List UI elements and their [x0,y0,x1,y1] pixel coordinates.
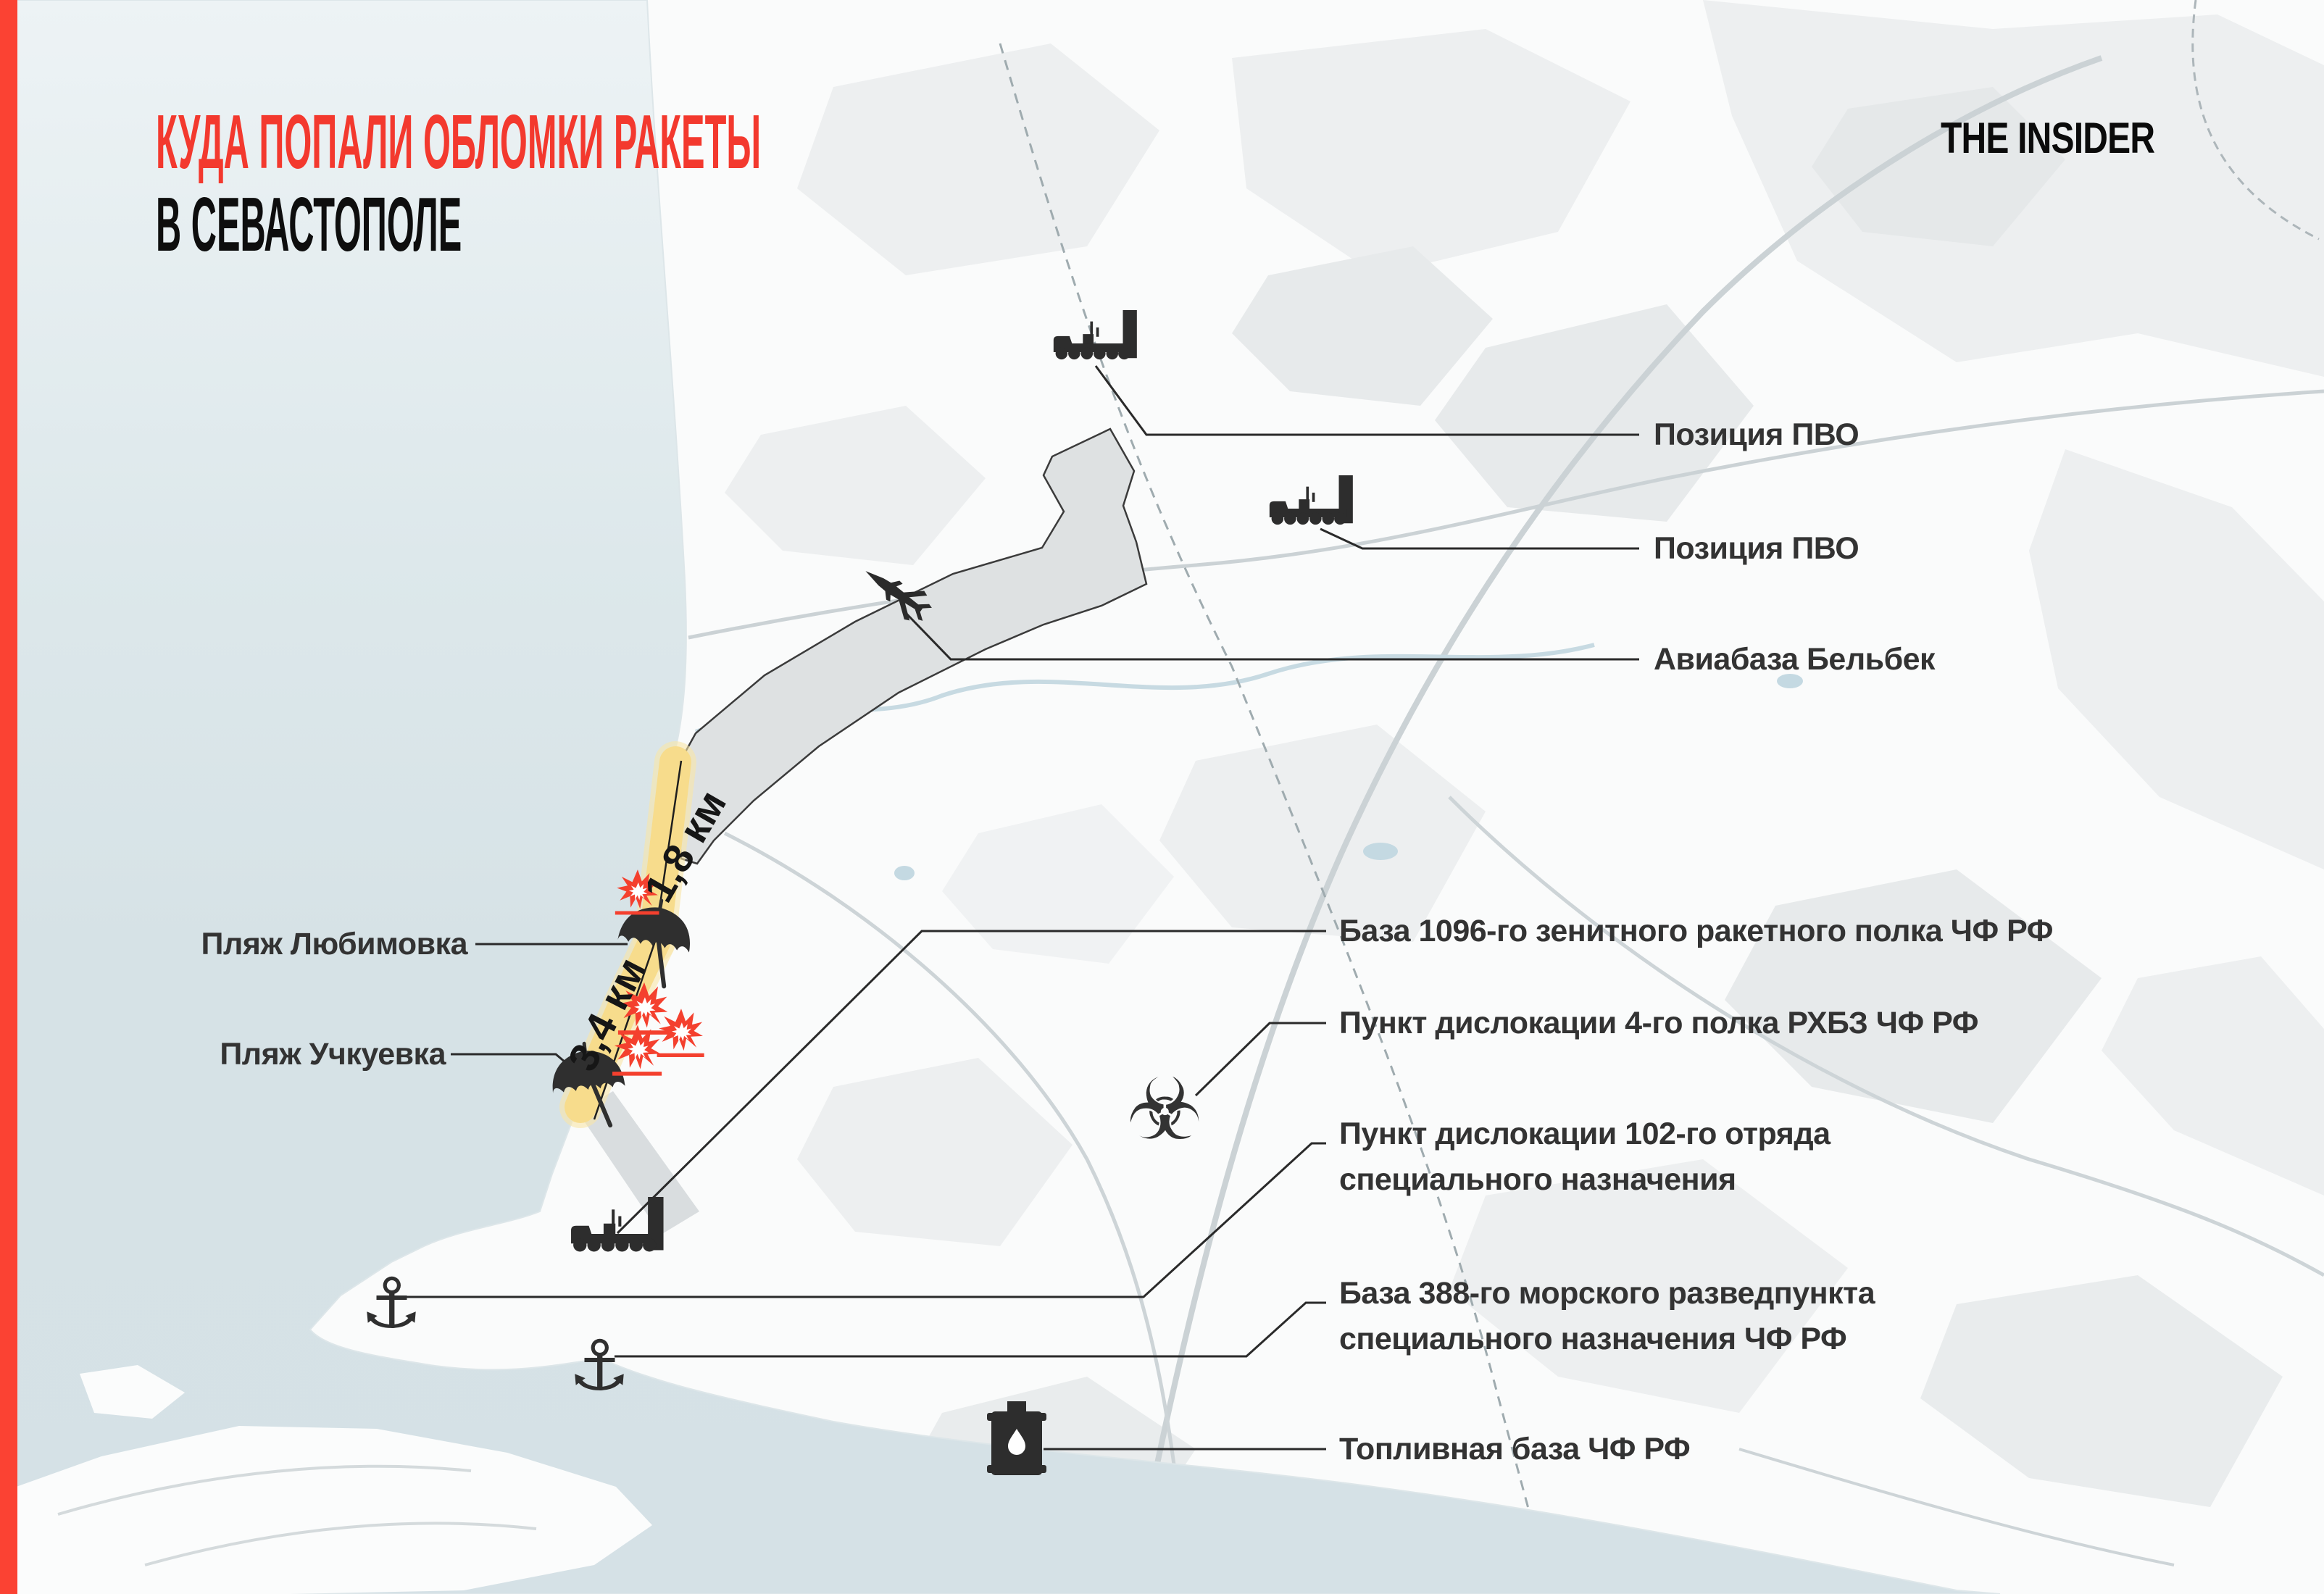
infographic-canvas: ☣ ⚓ ⚓ КУДА ПОПАЛИ ОБЛОМКИ РАКЕТЫ В СЕВАС… [0,0,2324,1594]
callout-label: База 1096-го зенитного ракетного полка Ч… [1339,909,2053,954]
callout-pvo-1: Позиция ПВО [1654,412,1859,458]
callout-base-388: База 388-го морского разведпункта специа… [1339,1271,1875,1362]
callout-base-1096: База 1096-го зенитного ракетного полка Ч… [1339,909,2053,954]
anchor-icon-2: ⚓ [568,1325,630,1406]
callout-label: специального назначения ЧФ РФ [1339,1316,1875,1362]
callout-label: Пункт дислокации 102-го отряда [1339,1111,1831,1157]
accent-bar [0,0,17,1594]
label-beach-uchkuevka: Пляж Учкуевка [220,1032,446,1077]
title-block: КУДА ПОПАЛИ ОБЛОМКИ РАКЕТЫ В СЕВАСТОПОЛЕ [156,101,1471,267]
callout-belbek: Авиабаза Бельбек [1654,637,1935,683]
callout-pvo-2: Позиция ПВО [1654,526,1859,572]
callout-label: Авиабаза Бельбек [1654,637,1935,683]
callout-label: Позиция ПВО [1654,526,1859,572]
page-title-line1: КУДА ПОПАЛИ ОБЛОМКИ РАКЕТЫ [156,101,761,183]
callout-fuel-base: Топливная база ЧФ РФ [1339,1427,1690,1472]
biohazard-icon: ☣ [1126,1059,1203,1159]
callout-label: База 388-го морского разведпункта [1339,1271,1875,1316]
anchor-icon-1: ⚓ [360,1263,422,1344]
callout-label: Топливная база ЧФ РФ [1339,1427,1690,1472]
callout-label: специального назначения [1339,1157,1831,1203]
callout-label: Позиция ПВО [1654,412,1859,458]
fuel-barrel-icon [987,1401,1046,1475]
label-beach-lyubimovka: Пляж Любимовка [201,922,467,967]
callout-rhbz-4: Пункт дислокации 4-го полка РХБЗ ЧФ РФ [1339,1001,1978,1046]
brand-logo: THE INSIDER [1941,113,2154,163]
page-title-line2: В СЕВАСТОПОЛЕ [156,183,761,267]
callout-unit-102: Пункт дислокации 102-го отряда специальн… [1339,1111,1831,1203]
callout-label: Пункт дислокации 4-го полка РХБЗ ЧФ РФ [1339,1001,1978,1046]
